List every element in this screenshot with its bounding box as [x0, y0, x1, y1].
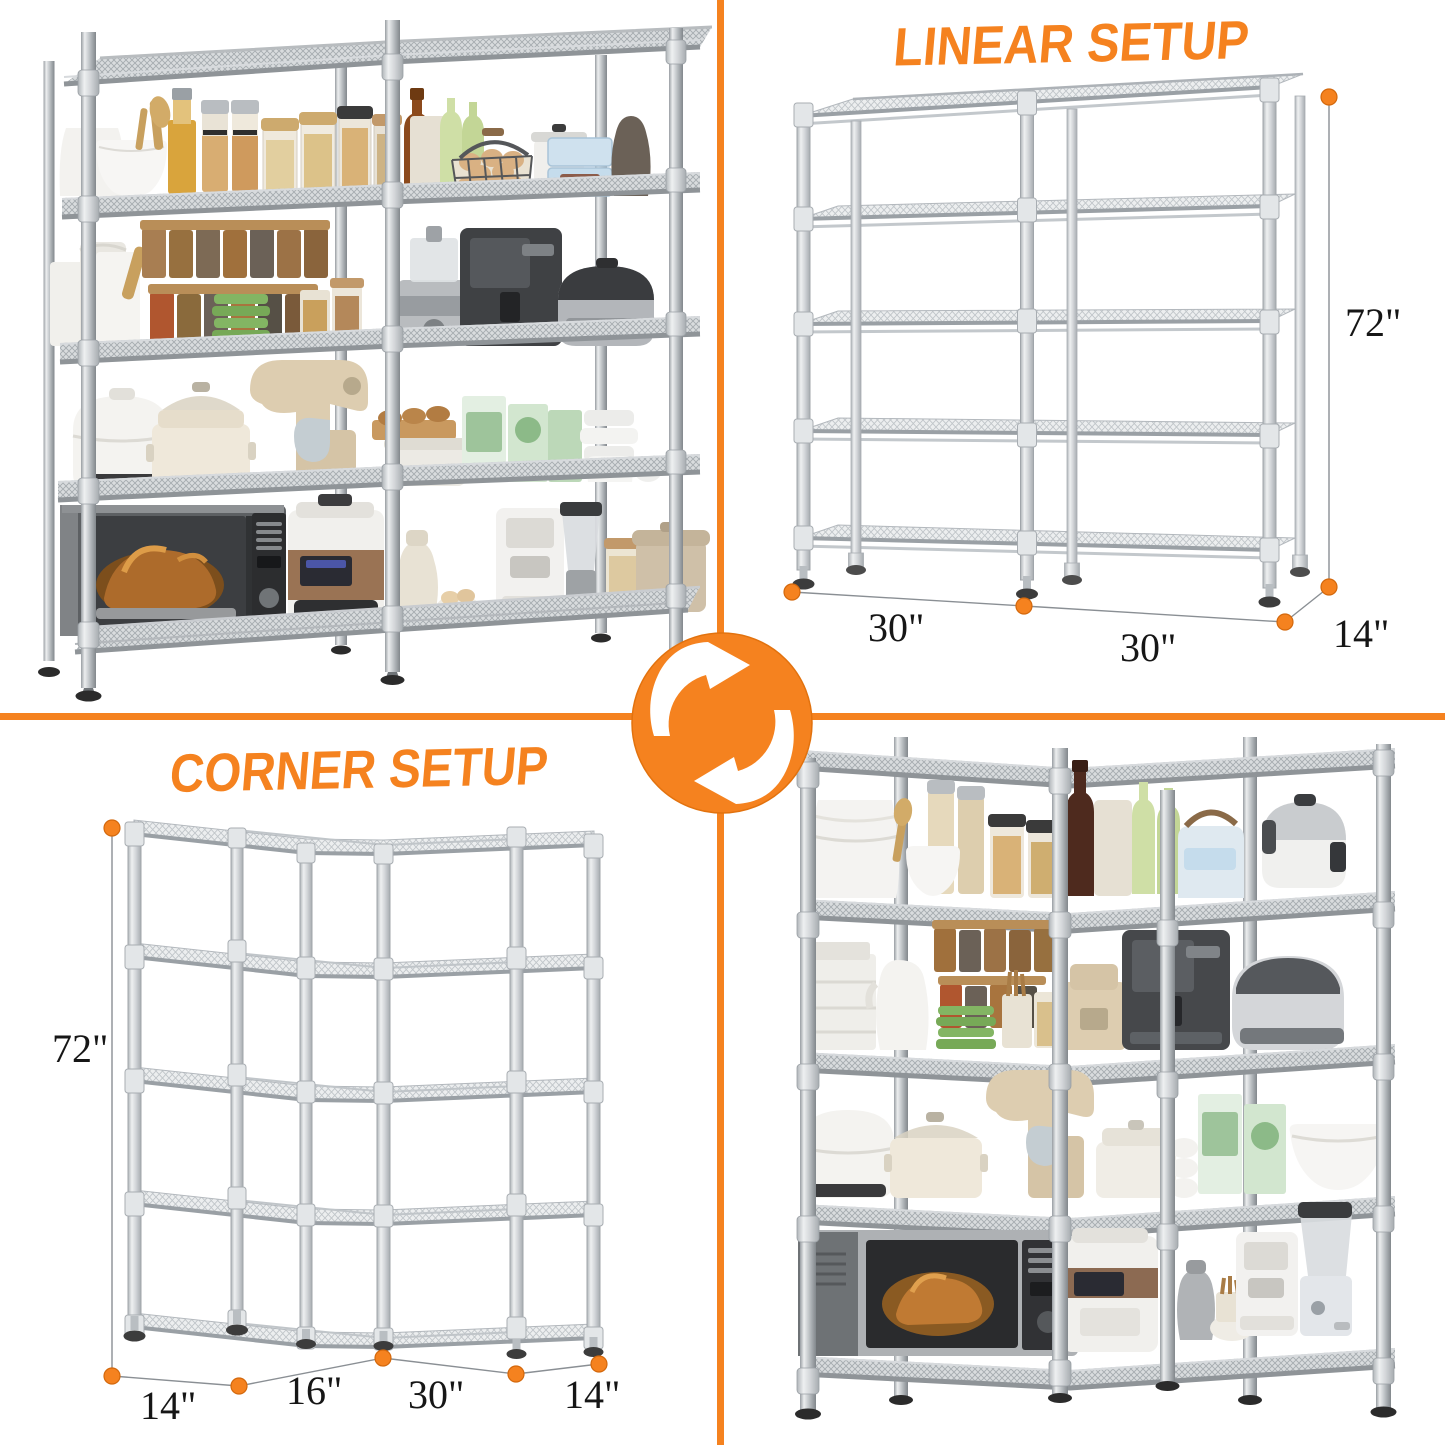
- svg-text:72": 72": [1345, 300, 1401, 345]
- svg-text:CORNER SETUP: CORNER SETUP: [167, 736, 550, 804]
- svg-text:16": 16": [286, 1368, 342, 1413]
- svg-text:30": 30": [408, 1372, 464, 1417]
- svg-text:72": 72": [52, 1026, 108, 1071]
- svg-text:14": 14": [564, 1372, 620, 1417]
- svg-text:LINEAR SETUP: LINEAR SETUP: [891, 10, 1251, 77]
- svg-text:14": 14": [1333, 611, 1389, 656]
- svg-text:14": 14": [140, 1383, 196, 1428]
- svg-text:30": 30": [1120, 625, 1176, 670]
- svg-text:30": 30": [868, 605, 924, 650]
